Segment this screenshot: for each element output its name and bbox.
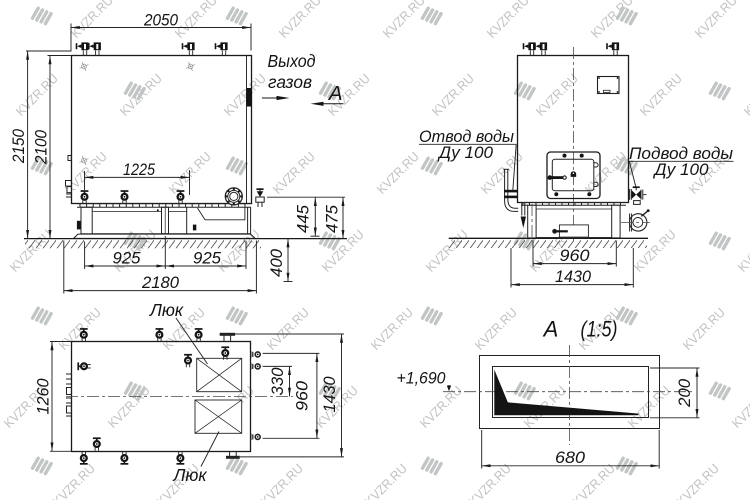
svg-text:2150: 2150 bbox=[9, 129, 28, 164]
svg-text:960: 960 bbox=[560, 246, 591, 265]
svg-text:(1:5): (1:5) bbox=[581, 317, 618, 342]
svg-text:2050: 2050 bbox=[143, 11, 178, 30]
svg-text:A: A bbox=[542, 317, 559, 342]
svg-text:Люк: Люк bbox=[149, 300, 184, 320]
svg-text:1260: 1260 bbox=[33, 378, 52, 415]
svg-text:1430: 1430 bbox=[555, 267, 592, 286]
svg-text:+1,690: +1,690 bbox=[397, 370, 447, 388]
svg-text:1225: 1225 bbox=[123, 160, 155, 179]
svg-text:475: 475 bbox=[323, 204, 342, 233]
svg-text:925: 925 bbox=[193, 249, 222, 268]
svg-text:газов: газов bbox=[268, 72, 312, 92]
svg-text:1430: 1430 bbox=[320, 376, 339, 413]
svg-text:680: 680 bbox=[555, 448, 586, 467]
svg-text:960: 960 bbox=[292, 380, 311, 411]
svg-text:330: 330 bbox=[268, 367, 287, 396]
svg-text:400: 400 bbox=[267, 248, 286, 277]
svg-text:445: 445 bbox=[293, 204, 312, 233]
svg-text:2180: 2180 bbox=[141, 273, 180, 292]
svg-text:200: 200 bbox=[675, 378, 694, 408]
svg-text:Выход: Выход bbox=[268, 51, 316, 71]
svg-text:A: A bbox=[327, 82, 343, 105]
svg-text:Ду 100: Ду 100 bbox=[437, 144, 494, 162]
svg-text:Люк: Люк bbox=[173, 465, 208, 485]
svg-text:925: 925 bbox=[113, 249, 142, 268]
svg-text:Ду 100: Ду 100 bbox=[652, 161, 709, 179]
svg-text:Подвод воды: Подвод воды bbox=[629, 145, 733, 163]
svg-text:2100: 2100 bbox=[32, 130, 51, 165]
svg-text:Отвод воды: Отвод воды bbox=[419, 128, 514, 146]
